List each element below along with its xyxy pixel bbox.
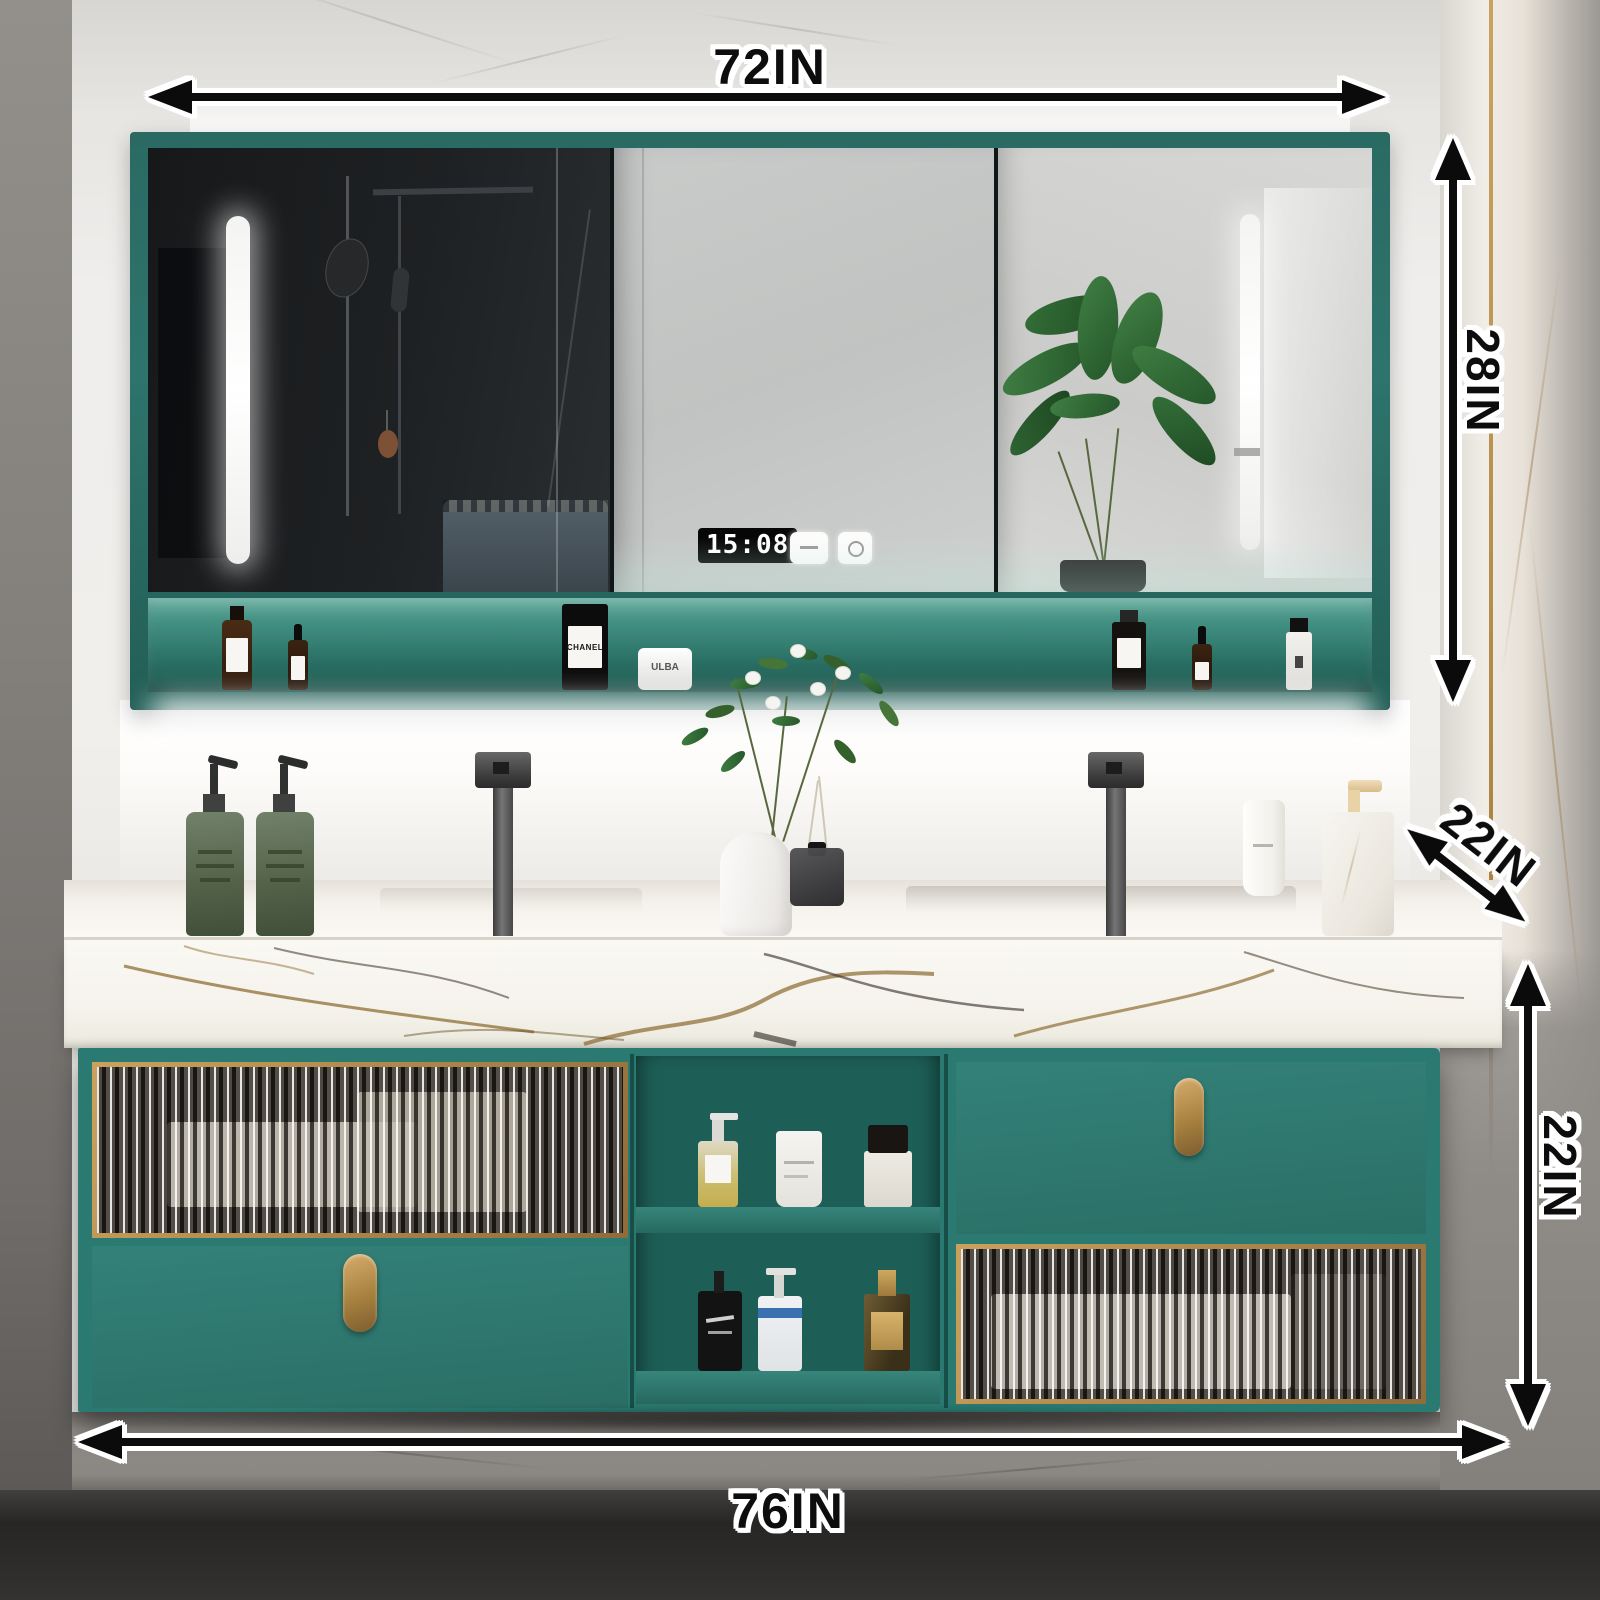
marble-streak xyxy=(1340,829,1361,907)
left-drawer[interactable] xyxy=(92,1246,628,1408)
arrowhead-left xyxy=(78,1425,122,1459)
mirror-panel-right xyxy=(998,148,1372,592)
sprig-leaf xyxy=(831,737,859,767)
sprig-leaf xyxy=(856,670,886,698)
shelf-board-bottom xyxy=(636,1371,940,1404)
handheld-shower-reflection xyxy=(390,267,410,312)
white-blue-pump-bottle xyxy=(758,1296,802,1371)
white-flower xyxy=(745,671,761,685)
cologne-label-mark xyxy=(1295,656,1303,668)
white-tube xyxy=(1243,800,1285,896)
arrow-shaft xyxy=(118,1438,1466,1446)
white-cologne-bottle xyxy=(1286,632,1312,690)
white-flower xyxy=(810,682,826,696)
yellow-pump-bottle xyxy=(698,1141,738,1207)
mirror-led-strip-left xyxy=(226,216,250,564)
pump-neck xyxy=(714,1271,724,1293)
glass-seam xyxy=(556,148,558,592)
reflection-dark-door xyxy=(158,248,228,558)
bottle-label xyxy=(291,656,305,680)
pump-spout xyxy=(766,1268,796,1275)
sprig-leaf xyxy=(758,656,789,670)
arrowhead-left xyxy=(148,80,192,114)
dimension-label-mirror-width: 72IN xyxy=(670,38,870,96)
label-line xyxy=(196,864,234,868)
marble-soap-dispenser xyxy=(1318,758,1398,936)
white-vase xyxy=(720,832,792,936)
floral-arrangement xyxy=(660,636,940,936)
right-fluted-glass-door[interactable] xyxy=(956,1244,1426,1404)
faucet-slot xyxy=(1106,762,1122,774)
black-cap xyxy=(868,1125,908,1153)
pump-collar xyxy=(273,794,295,812)
fluted-glass-ribs xyxy=(961,1249,1421,1399)
label-text: 72IN xyxy=(713,39,827,95)
diffuser-reed xyxy=(818,776,828,852)
label-script xyxy=(706,1315,734,1323)
shelf-glow-reflection xyxy=(614,537,994,592)
bottle-label xyxy=(226,638,248,672)
pump-stem xyxy=(210,764,218,794)
gold-label xyxy=(871,1312,903,1350)
arrowhead-up xyxy=(1510,964,1546,1006)
dropper-top xyxy=(1198,626,1206,644)
marble-counter-slab xyxy=(64,940,1502,1048)
black-cosmetic-bottle: CHANEL xyxy=(562,604,608,690)
sprig-leaf xyxy=(704,702,736,720)
green-soap-bottle xyxy=(186,756,244,936)
label-line xyxy=(266,864,304,868)
black-bottle-label: CHANEL xyxy=(567,643,603,652)
tube-mark xyxy=(784,1161,814,1164)
pump-neck xyxy=(712,1119,724,1141)
glass-interior xyxy=(961,1249,1421,1399)
tube-mark xyxy=(784,1175,808,1178)
amber-bottle-cap xyxy=(230,606,244,620)
arrowhead-down xyxy=(1435,660,1471,702)
soap-bottle-body xyxy=(186,812,244,936)
white-flower xyxy=(765,696,781,710)
shower-rail-reflection xyxy=(346,176,349,516)
pump-spout xyxy=(710,1113,738,1120)
arrowhead-up xyxy=(1435,138,1471,180)
bottle-label xyxy=(705,1155,731,1183)
dimension-label-cabinet-height: 22IN xyxy=(1533,1087,1587,1247)
vanity-cabinet xyxy=(78,1048,1440,1412)
label-line xyxy=(270,878,300,882)
sprig-leaf xyxy=(679,724,710,749)
vein-path xyxy=(1014,970,1274,1036)
label-text: 28IN xyxy=(1457,328,1509,433)
vein-path xyxy=(184,946,314,974)
reflection-bright-wall xyxy=(1264,188,1372,578)
dark-perfume-bottle xyxy=(1112,622,1146,690)
faucet-slot xyxy=(493,762,509,774)
left-drawer-handle[interactable] xyxy=(343,1254,377,1332)
wall-fixture-reflection xyxy=(1234,448,1260,456)
tub-reflection xyxy=(443,500,608,592)
amber-bottle xyxy=(222,620,252,690)
pump-neck xyxy=(774,1274,784,1298)
shelf-board xyxy=(636,1207,940,1233)
marble-streak xyxy=(547,209,591,506)
left-wall-corner xyxy=(0,0,72,1600)
shower-rail-reflection xyxy=(398,196,401,514)
bathroom-vanity-product-photo: 15:08 xyxy=(0,0,1600,1600)
middle-open-shelves xyxy=(636,1056,940,1404)
dropper-bottle xyxy=(288,640,308,690)
left-faucet-head xyxy=(475,752,531,788)
mirror-cabinet: 15:08 xyxy=(130,132,1390,710)
dimension-arrow-total-width xyxy=(78,1424,1506,1460)
dispenser-body xyxy=(1322,812,1394,936)
loofah-reflection xyxy=(378,430,398,458)
reflection-line xyxy=(642,148,644,592)
white-flower xyxy=(835,666,851,680)
arrowhead-right xyxy=(1342,80,1386,114)
label-line xyxy=(268,850,302,854)
mirror-led-strip-right xyxy=(1240,214,1260,550)
white-flower xyxy=(790,644,806,658)
fluted-glass-ribs xyxy=(97,1067,623,1233)
white-bottle xyxy=(864,1151,912,1207)
green-soap-bottle xyxy=(256,756,314,936)
left-fluted-glass-door[interactable] xyxy=(92,1062,628,1238)
perfume-cap xyxy=(1120,610,1138,622)
tube-mark xyxy=(1253,844,1273,847)
label-text: 76IN xyxy=(731,1483,845,1539)
mirror-panel-middle: 15:08 xyxy=(614,148,994,592)
pump-collar xyxy=(203,794,225,812)
dropper-bottle xyxy=(1192,644,1212,690)
white-tube xyxy=(776,1131,822,1207)
pump-stem xyxy=(280,764,288,794)
tub-slats xyxy=(443,500,608,512)
gold-pump-stem xyxy=(1348,790,1360,814)
vein-path xyxy=(1244,952,1464,998)
cabinet-seam xyxy=(944,1054,948,1408)
vein-path xyxy=(124,966,534,1032)
label-text: 22IN xyxy=(1534,1114,1586,1219)
sprig-leaf xyxy=(876,698,902,729)
shelf-glow-reflection xyxy=(998,537,1372,592)
black-pump-bottle xyxy=(698,1291,742,1371)
arrowhead-right xyxy=(1462,1425,1506,1459)
cabinet-seam xyxy=(630,1054,634,1408)
vein-path xyxy=(754,1034,796,1044)
sprig-leaf xyxy=(772,716,800,726)
dimension-label-total-width: 76IN xyxy=(688,1482,888,1540)
dimension-label-mirror-height: 28IN xyxy=(1456,301,1510,461)
label-script xyxy=(708,1331,732,1334)
reed-diffuser-bottle xyxy=(790,848,844,906)
sprig-leaf xyxy=(718,748,748,776)
arrow-shaft xyxy=(1524,1002,1532,1388)
shower-head-reflection xyxy=(319,234,375,303)
glass-interior xyxy=(97,1067,623,1233)
blue-band xyxy=(758,1308,802,1318)
arrowhead-down xyxy=(1510,1384,1546,1426)
bottle-label xyxy=(1117,638,1141,668)
right-drawer[interactable] xyxy=(956,1062,1426,1234)
soap-bottle-body xyxy=(256,812,314,936)
label-line xyxy=(200,878,230,882)
marble-veins xyxy=(64,940,1502,1048)
bottle-label xyxy=(1195,662,1209,680)
gold-cap xyxy=(878,1270,896,1296)
cologne-cap xyxy=(1290,618,1308,632)
right-sink-basin xyxy=(906,886,1296,934)
vein-path xyxy=(404,1030,624,1040)
shower-bar-reflection xyxy=(373,187,533,196)
dropper-top xyxy=(294,624,302,640)
loofah-string xyxy=(386,410,388,432)
right-faucet-head xyxy=(1088,752,1144,788)
mirror-panel-left xyxy=(148,148,610,592)
right-drawer-handle[interactable] xyxy=(1174,1078,1204,1156)
mirror-panels: 15:08 xyxy=(148,148,1372,592)
label-line xyxy=(198,850,232,854)
gold-perfume-bottle xyxy=(864,1294,910,1371)
